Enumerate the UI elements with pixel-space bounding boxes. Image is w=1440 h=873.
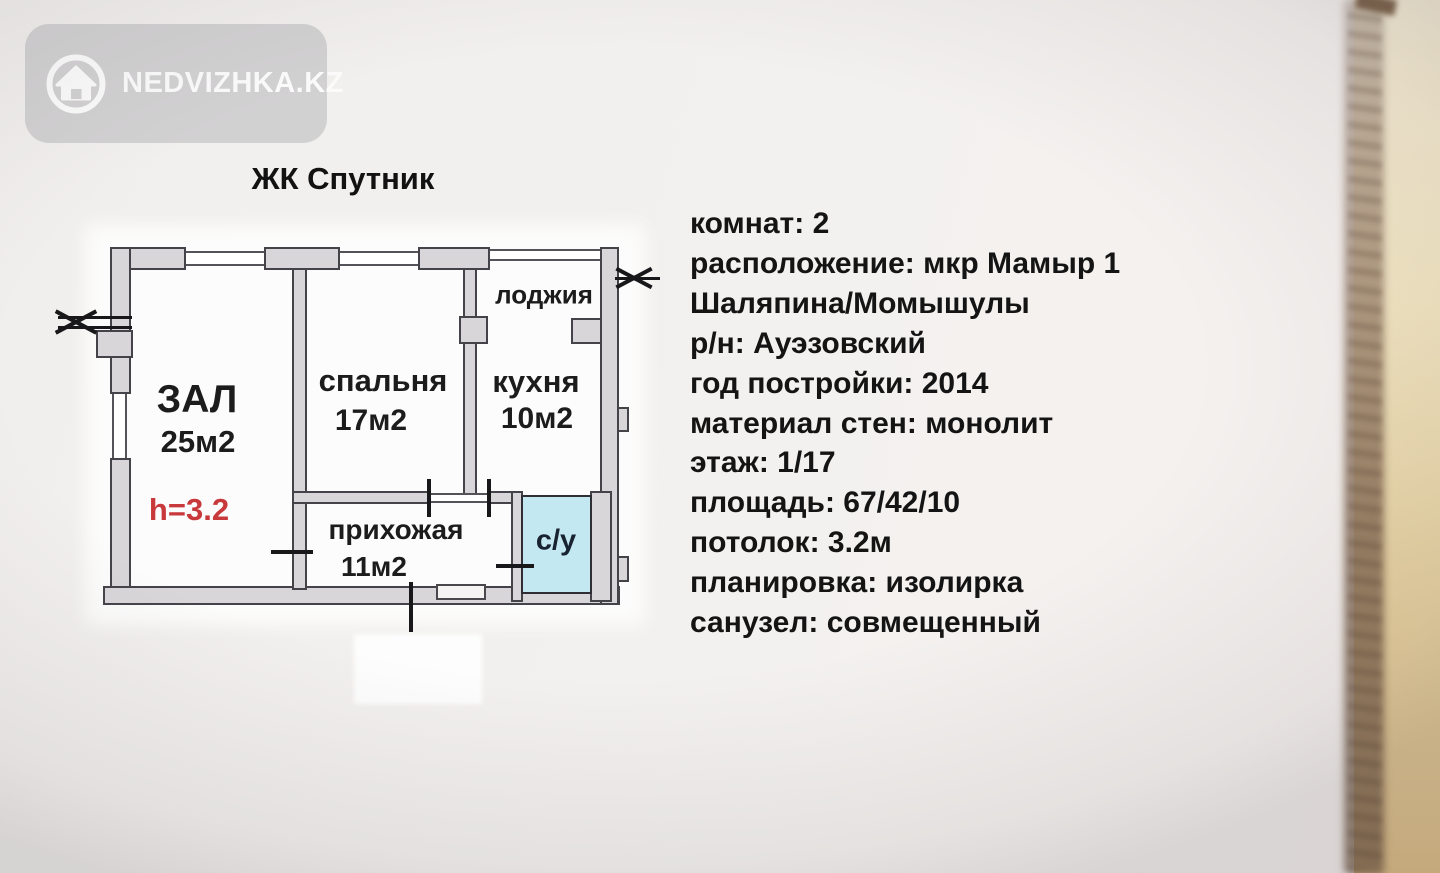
detail-line-layout: планировка: изолирка <box>690 563 1120 603</box>
paper-white-patch <box>354 634 482 704</box>
wall-lodzhiya-junction <box>459 316 488 344</box>
room-label-spalnya: спальня <box>319 363 448 399</box>
wall-top-3 <box>418 247 490 270</box>
wall-left-lower <box>110 458 131 605</box>
room-area-zal: 25м2 <box>161 424 236 460</box>
wall-prihozhaya-1 <box>292 491 429 504</box>
detail-line-floor: этаж: 1/17 <box>690 443 1120 483</box>
door-tick-kuhnya-2 <box>487 479 491 517</box>
detail-line-area: площадь: 67/42/10 <box>690 483 1120 523</box>
room-area-prihozhaya: 11м2 <box>341 551 407 583</box>
house-logo-icon <box>44 52 108 116</box>
room-area-kuhnya: 10м2 <box>501 402 573 436</box>
door-tick-kuhnya-1 <box>427 479 431 517</box>
wall-zal-divider <box>292 268 307 590</box>
room-label-kuhnya: кухня <box>492 364 579 400</box>
detail-line-year: год постройки: 2014 <box>690 364 1120 404</box>
room-label-zal: ЗАЛ <box>157 378 237 422</box>
door-tick-entry <box>409 582 413 632</box>
detail-line-streets: Шаляпина/Момышулы <box>690 284 1120 324</box>
ceiling-height-note: h=3.2 <box>149 492 229 528</box>
door-tick-zal <box>271 550 313 554</box>
entry-door-inset <box>436 584 486 600</box>
room-label-sanuzel: с/у <box>536 525 576 558</box>
room-label-prihozhaya: прихожая <box>329 514 464 546</box>
complex-title: ЖК Спутник <box>252 161 435 197</box>
wall-left-upper <box>110 247 131 394</box>
watermark-brand-text: NEDVIZHKA.KZ <box>122 67 344 100</box>
wall-top-2 <box>264 247 340 270</box>
window-zal <box>186 251 264 266</box>
window-zal-left <box>112 394 127 458</box>
wall-right-bump-1 <box>617 407 629 432</box>
listing-details: комнат: 2 расположение: мкр Мамыр 1 Шаля… <box>690 204 1120 643</box>
door-tick-su <box>496 564 534 568</box>
paper-edge-texture <box>1348 0 1382 873</box>
room-area-spalnya: 17м2 <box>335 404 407 438</box>
window-lodzhiya <box>490 249 602 261</box>
detail-line-location: расположение: мкр Мамыр 1 <box>690 244 1120 284</box>
doorway-kuhnya <box>429 493 487 503</box>
wall-right-bump-2 <box>617 556 629 582</box>
detail-line-ceiling: потолок: 3.2м <box>690 523 1120 563</box>
wall-lodzhiya-stub <box>571 318 602 344</box>
detail-line-district: р/н: Ауэзовский <box>690 324 1120 364</box>
listing-photo: NEDVIZHKA.KZ ЖК Спутник ЗАЛ 25м2 h=3.2 с… <box>0 0 1440 873</box>
wall-kuhnya-divider <box>463 268 477 498</box>
detail-line-rooms: комнат: 2 <box>690 204 1120 244</box>
wall-su-right <box>590 491 612 602</box>
room-label-lodzhiya: лоджия <box>495 280 593 311</box>
watermark-badge: NEDVIZHKA.KZ <box>25 24 327 143</box>
detail-line-material: материал стен: монолит <box>690 404 1120 444</box>
detail-line-bathroom: санузел: совмещенный <box>690 603 1120 643</box>
window-spalnya <box>340 251 418 266</box>
wall-left-step <box>96 330 133 358</box>
